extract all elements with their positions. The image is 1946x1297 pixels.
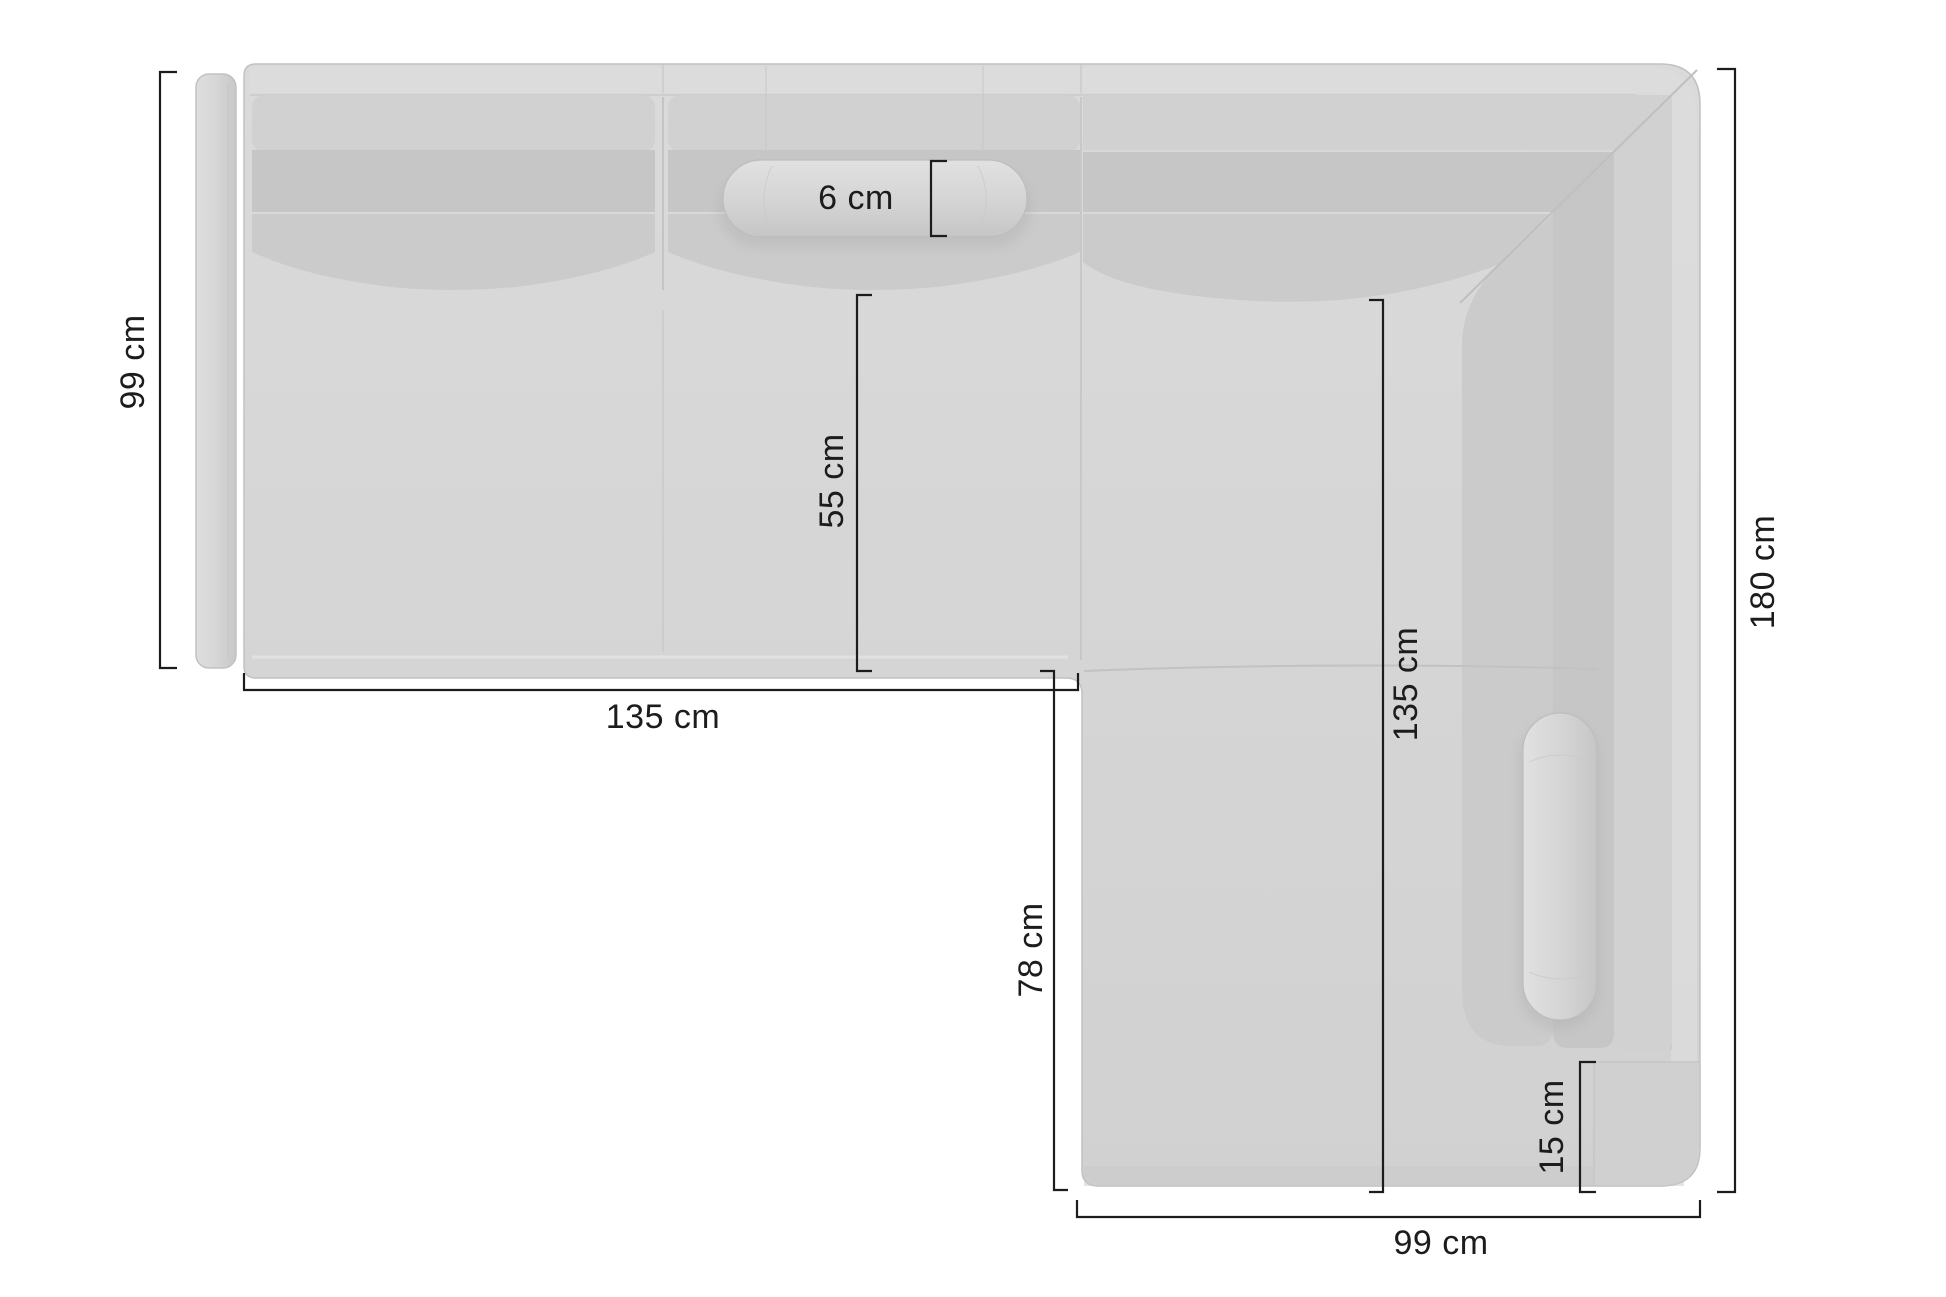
dim-label-chaise-inner-length: 78 cm xyxy=(1014,902,1048,997)
dim-label-seat-depth: 55 cm xyxy=(815,433,849,528)
diagram-canvas: 99 cm 6 cm 55 cm 135 cm 78 cm 135 cm 15 … xyxy=(0,0,1946,1297)
dim-label-right-length: 180 cm xyxy=(1746,515,1780,630)
left-seat-backrest xyxy=(252,95,655,290)
dim-label-armrest-width: 15 cm xyxy=(1535,1079,1569,1174)
left-armrest-panel xyxy=(196,74,236,668)
dim-label-left-depth: 99 cm xyxy=(116,314,150,409)
dim-label-right-inner-length: 135 cm xyxy=(1389,627,1423,742)
dim-line-left-depth xyxy=(160,72,177,668)
dim-label-left-width: 135 cm xyxy=(606,700,721,734)
dim-label-headrest-thickness: 6 cm xyxy=(818,181,894,215)
sofa-dimension-drawing xyxy=(0,0,1946,1297)
dim-line-right-length xyxy=(1717,69,1735,1192)
dim-label-chaise-width: 99 cm xyxy=(1393,1226,1488,1260)
dim-line-chaise-width xyxy=(1077,1200,1700,1217)
right-armrest-block xyxy=(1594,1062,1700,1186)
